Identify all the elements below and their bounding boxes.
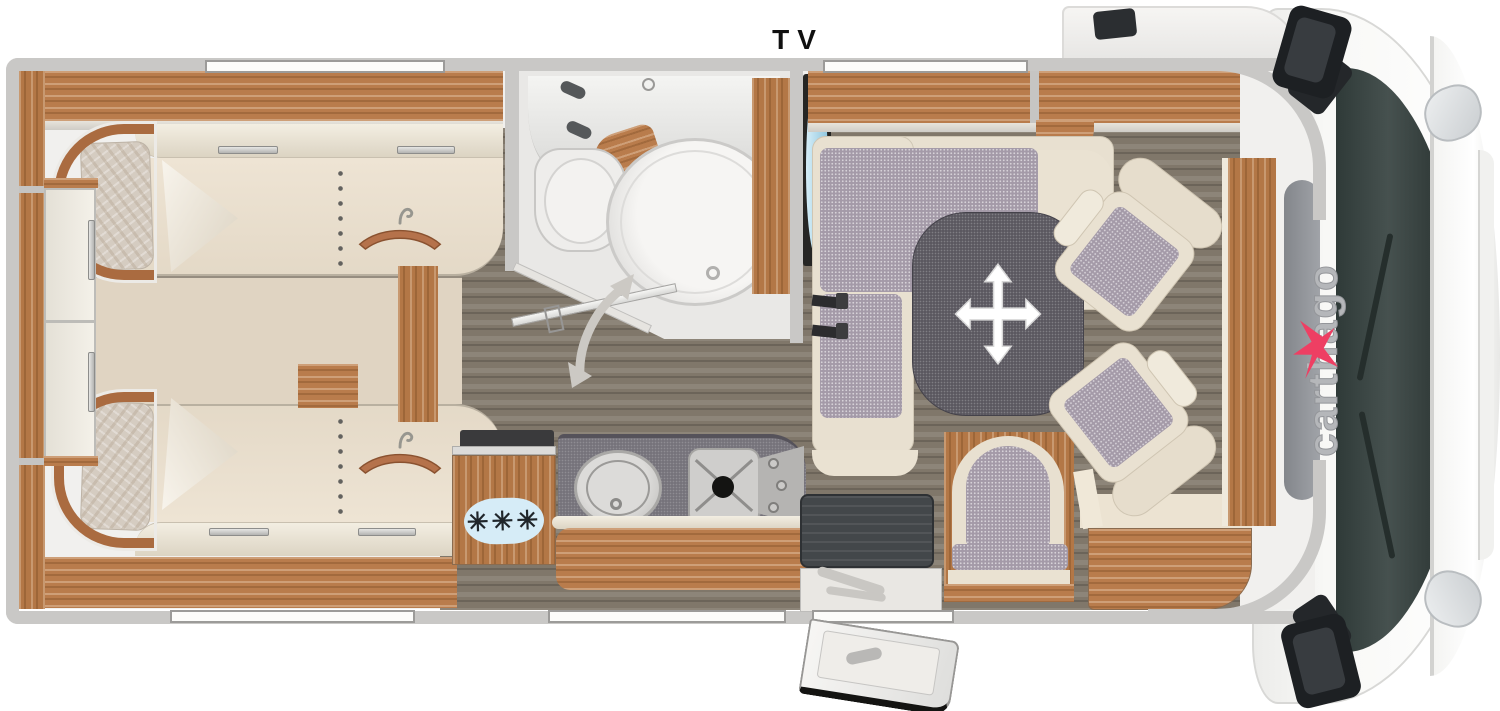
window-kitchen-bottom xyxy=(548,610,786,623)
single-seat-edge xyxy=(948,570,1070,584)
bed-bench-front xyxy=(45,557,457,608)
bed-locker-handle xyxy=(218,146,278,154)
hanger-icon xyxy=(352,200,448,252)
roof-vent-icon xyxy=(1093,8,1138,40)
hob-knob xyxy=(776,480,787,491)
door-swing-arrow-icon xyxy=(552,272,644,390)
seatbelt-buckle-icon xyxy=(836,323,848,339)
entry-step-mat xyxy=(800,494,934,568)
wardrobe-handle xyxy=(88,352,95,412)
wardrobe-divider xyxy=(46,320,94,323)
single-seat-cushion xyxy=(952,544,1068,570)
window-bedroom-bottom xyxy=(170,610,415,623)
shower-drain xyxy=(706,266,720,280)
sink-drain xyxy=(610,498,622,510)
brand-text: carthago xyxy=(1299,263,1347,456)
hob-knob xyxy=(768,458,779,469)
bed-locker-handle xyxy=(358,528,416,536)
bathroom-right-cabinet xyxy=(752,78,790,294)
seatbelt-buckle-icon xyxy=(836,293,848,309)
bathroom-tv-partition xyxy=(790,71,803,343)
wardrobe-handle xyxy=(88,220,95,280)
tv-label-text: TV xyxy=(772,24,824,55)
kitchen-cabinet-front xyxy=(556,528,808,590)
bedside-cabinet xyxy=(298,364,358,408)
fridge-rim xyxy=(452,446,556,455)
wardrobe-cap xyxy=(44,456,98,466)
wardrobe-cap xyxy=(44,178,98,188)
bench-side-cushion xyxy=(820,294,902,418)
table-move-arrow-icon xyxy=(954,262,1042,366)
bench-seat-edge xyxy=(812,450,918,476)
rear-wardrobe xyxy=(19,71,45,609)
top-bed-split-line xyxy=(338,166,343,268)
hob-knob xyxy=(768,502,779,513)
single-seat-base xyxy=(944,584,1074,602)
tv-label: TV xyxy=(762,24,834,60)
single-seat-back-cushion xyxy=(966,446,1050,546)
motorhome-floorplan: ✳✳✳ xyxy=(0,0,1500,711)
vanity-hole xyxy=(642,78,655,91)
window-bedroom-top xyxy=(205,60,445,73)
bed-locker-handle xyxy=(209,528,269,536)
bed-locker-handle xyxy=(397,146,455,154)
freezer-snowflakes: ✳✳✳ xyxy=(466,505,541,538)
bedroom-overhead-locker xyxy=(45,71,503,121)
hob-burner xyxy=(712,476,734,498)
bathroom-left-wall xyxy=(505,71,519,271)
window-dinette-top xyxy=(823,60,1028,73)
brand-lettering: carthago xyxy=(1298,226,1348,494)
bottom-bed-head-shelf xyxy=(135,522,503,556)
bedroom-partition-pillar xyxy=(398,266,438,422)
front-bumper xyxy=(1478,150,1494,560)
bottom-bed-split-line xyxy=(338,414,343,514)
hanger-icon xyxy=(352,424,448,476)
